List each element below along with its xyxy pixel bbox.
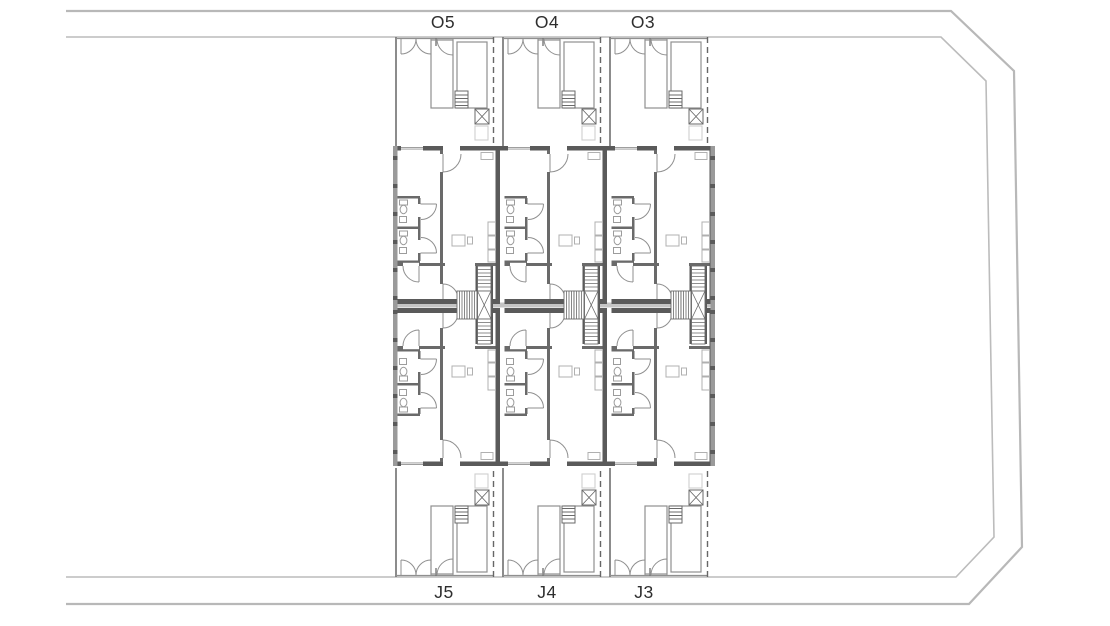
patio-J4 <box>503 468 601 577</box>
floor-plan-svg: O5 O4 O3 J5 J4 J3 <box>0 0 1110 626</box>
patio-J3 <box>610 468 708 577</box>
floor-plan-canvas: O5 O4 O3 J5 J4 J3 <box>0 0 1110 626</box>
patio-O3 <box>610 37 708 146</box>
stair-core-5 <box>457 266 493 344</box>
label-O5: O5 <box>431 12 455 32</box>
stair-core-4 <box>564 266 600 344</box>
label-O3: O3 <box>631 12 655 32</box>
label-J4: J4 <box>537 582 556 602</box>
label-O4: O4 <box>535 12 559 32</box>
patio-O4 <box>503 37 601 146</box>
label-J5: J5 <box>434 582 453 602</box>
label-J3: J3 <box>634 582 653 602</box>
patio-O5 <box>396 37 494 146</box>
stair-core-3 <box>671 266 707 344</box>
building-east-wall <box>711 146 716 466</box>
building-west-wall <box>393 146 398 466</box>
patio-J5 <box>396 468 494 577</box>
